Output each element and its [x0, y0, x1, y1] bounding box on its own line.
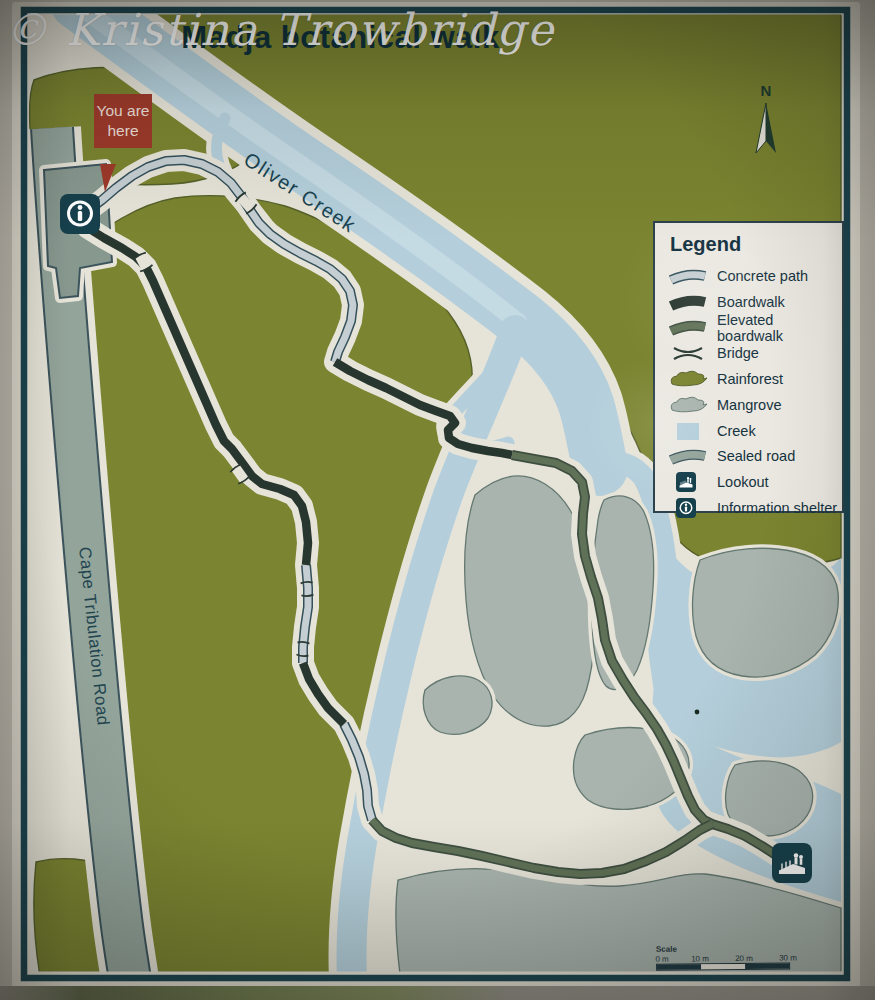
legend-items: Concrete path Boardwalk Elevated boardwa…	[668, 263, 842, 521]
legend-item-label: Mangrove	[717, 397, 781, 413]
legend-item-lookout: Lookout	[668, 469, 842, 495]
legend-item-label: Information shelter	[717, 500, 837, 516]
scale-ticks: 0 m 10 m 20 m 30 m	[656, 953, 816, 964]
map-dot-marker	[695, 710, 700, 715]
legend-symbol	[668, 369, 708, 389]
legend-item-label: Sealed road	[717, 448, 795, 464]
photo-of-trail-map-sign: Madja botanical walk © Kristina Trowbrid…	[0, 0, 875, 1000]
legend-symbol	[668, 395, 708, 415]
scale-tick-20: 20 m	[735, 954, 753, 963]
legend-item-concrete-path: Concrete path	[668, 263, 842, 289]
north-arrow: N	[748, 82, 784, 163]
legend-item-label: Elevated boardwalk	[717, 312, 842, 344]
legend-item-mangrove: Mangrove	[668, 392, 842, 418]
legend-symbol	[668, 266, 708, 286]
information-shelter-icon	[60, 194, 100, 234]
legend-item-rainforest: Rainforest	[668, 366, 842, 392]
legend-item-bridge: Bridge	[668, 340, 842, 366]
scale-label: Scale	[656, 943, 816, 954]
scale-bar: Scale 0 m 10 m 20 m 30 m	[656, 943, 816, 970]
legend-item-label: Boardwalk	[717, 294, 785, 310]
legend-item-label: Concrete path	[717, 268, 808, 284]
legend-item-information-shelter: Information shelter	[668, 495, 842, 521]
legend-symbol	[668, 498, 708, 518]
you-are-here-flag: You are here	[94, 94, 152, 148]
legend-symbol	[668, 292, 708, 312]
legend-item-sealed-road: Sealed road	[668, 444, 842, 470]
watermark: © Kristina Trowbridge	[4, 4, 555, 55]
ground-vegetation	[0, 986, 875, 1000]
legend-symbol	[668, 446, 708, 466]
legend-symbol	[668, 421, 708, 441]
lookout-icon	[772, 843, 812, 883]
legend-item-creek: Creek	[668, 418, 842, 444]
legend-item-label: Bridge	[717, 345, 759, 361]
legend-item-label: Rainforest	[717, 371, 783, 387]
legend-title: Legend	[670, 233, 842, 256]
legend-symbol	[668, 317, 708, 337]
scale-tick-30: 30 m	[779, 953, 797, 962]
scale-tick-10: 10 m	[691, 954, 709, 963]
legend-panel: Legend Concrete path Boardwalk Elevated …	[653, 221, 844, 513]
legend-item-label: Lookout	[717, 474, 769, 490]
legend-symbol	[668, 343, 708, 363]
north-label: N	[748, 82, 784, 99]
legend-item-label: Creek	[717, 423, 756, 439]
scale-tick-0: 0 m	[655, 955, 668, 964]
legend-item-elevated-boardwalk: Elevated boardwalk	[668, 315, 842, 341]
legend-symbol	[668, 472, 708, 492]
north-arrow-icon	[749, 99, 783, 159]
